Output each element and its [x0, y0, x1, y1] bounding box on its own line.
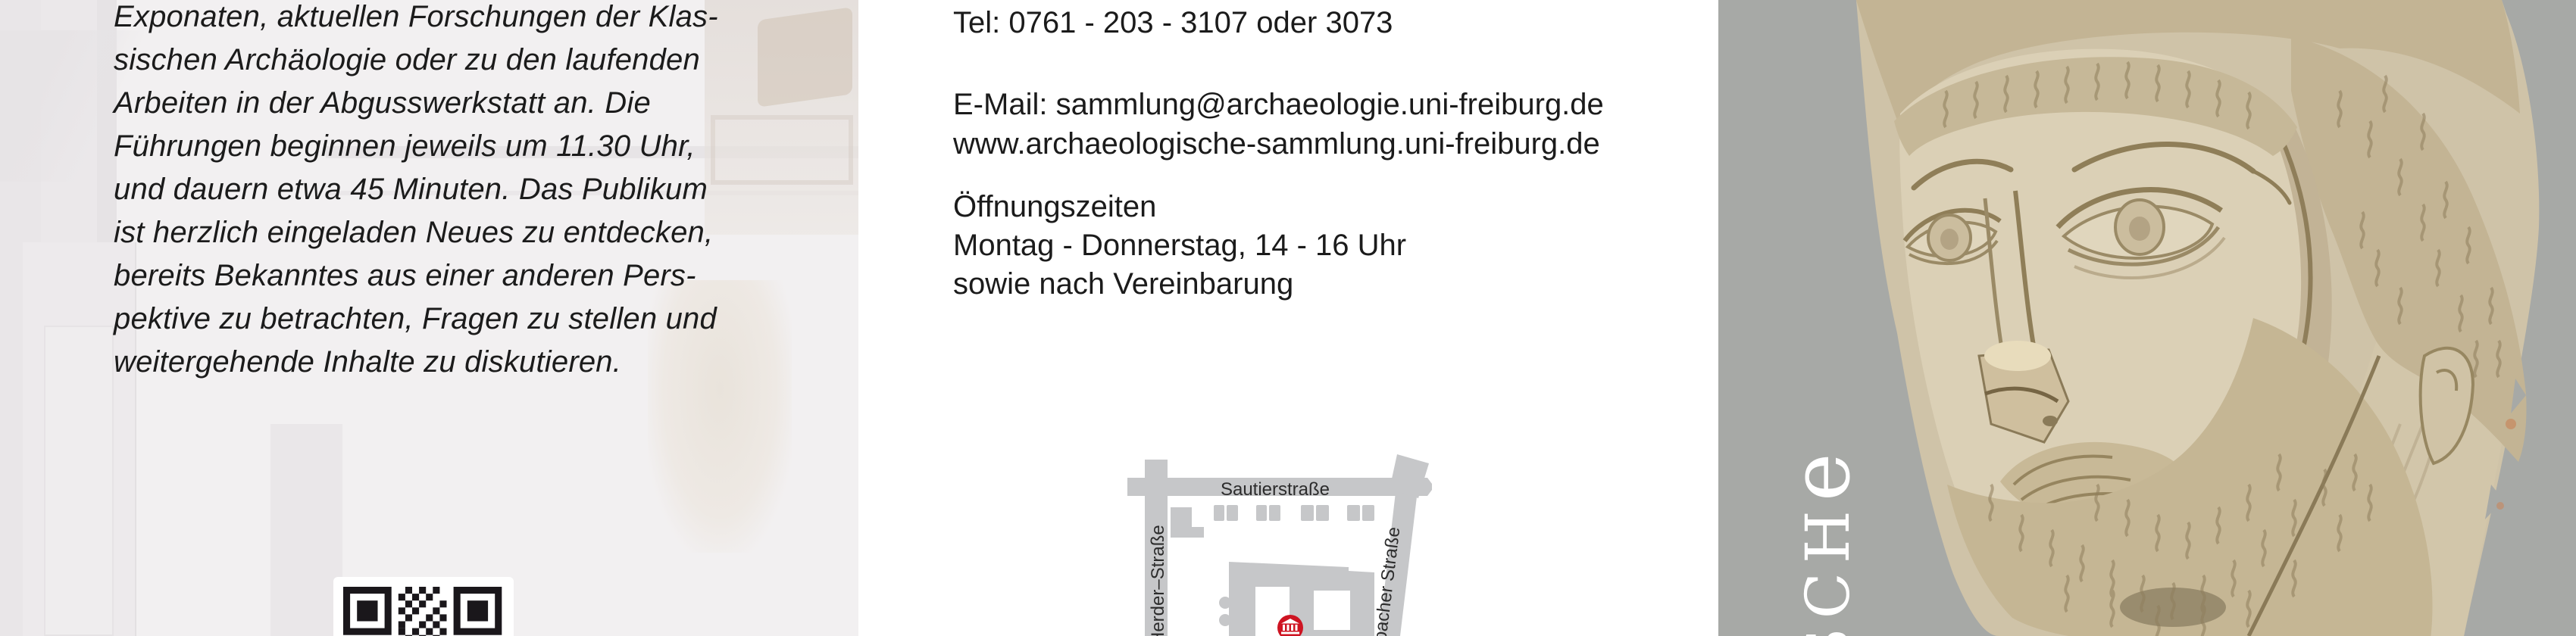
- location-map: Sautierstraße Herder–Straße bacher Straß…: [1127, 454, 1432, 636]
- street-end: [1427, 478, 1432, 496]
- photo-display-case: [44, 326, 114, 636]
- photo-pillar: [270, 424, 342, 636]
- paragraph-line: bereits Bekanntes aus einer anderen Pers…: [114, 254, 750, 298]
- paragraph-line: Exponaten, aktuellen Forschungen der Kla…: [114, 0, 750, 39]
- paragraph-line: ist herzlich eingeladen Neues zu entdeck…: [114, 211, 750, 254]
- map-buildings: [1171, 505, 1374, 636]
- opening-hours-line: sowie nach Vereinbarung: [953, 265, 1406, 304]
- opening-hours-title: Öffnungszeiten: [953, 188, 1406, 226]
- paragraph-line: pektive zu betrachten, Fragen zu stellen…: [114, 298, 750, 341]
- photo-background-strip: [0, 0, 41, 636]
- street-label-left: Herder–Straße: [1148, 525, 1168, 636]
- vertical-title-caps: SCH: [1793, 501, 1863, 636]
- left-panel: Exponaten, aktuellen Forschungen der Kla…: [0, 0, 858, 636]
- opening-hours-block: Öffnungszeiten Montag - Donnerstag, 14 -…: [953, 188, 1406, 304]
- paragraph-line: weitergehende Inhalte zu diskutieren.: [114, 341, 750, 384]
- street-label-top: Sautierstraße: [1221, 479, 1330, 500]
- paragraph-line: Führungen beginnen jeweils um 11.30 Uhr,: [114, 125, 750, 168]
- right-panel: SCHe: [1718, 0, 2576, 636]
- qr-code-icon: [343, 587, 504, 636]
- paragraph-line: und dauern etwa 45 Minuten. Das Publikum: [114, 168, 750, 211]
- vertical-title: SCHe: [1780, 453, 1862, 636]
- photo-background-strip: [41, 0, 97, 636]
- qr-code: [333, 577, 514, 636]
- opening-hours-line: Montag - Donnerstag, 14 - 16 Uhr: [953, 226, 1406, 265]
- email-line: E-Mail: sammlung@archaeologie.uni-freibu…: [953, 85, 1604, 124]
- tour-info-paragraph: Exponaten, aktuellen Forschungen der Kla…: [114, 0, 750, 384]
- brochure-page: Exponaten, aktuellen Forschungen der Kla…: [0, 0, 2576, 636]
- middle-panel: Tel: 0761 - 203 - 3107 oder 3073 E-Mail:…: [858, 0, 1718, 636]
- photo-artifact: [758, 7, 852, 108]
- phone-line: Tel: 0761 - 203 - 3107 oder 3073: [953, 3, 1393, 42]
- paragraph-line: sischen Archäologie oder zu den laufende…: [114, 39, 750, 82]
- paragraph-line: Arbeiten in der Abgusswerkstatt an. Die: [114, 82, 750, 125]
- contact-block: E-Mail: sammlung@archaeologie.uni-freibu…: [953, 85, 1604, 164]
- website-line: www.archaeologische-sammlung.uni-freibur…: [953, 124, 1604, 164]
- vertical-title-e: e: [1774, 453, 1868, 501]
